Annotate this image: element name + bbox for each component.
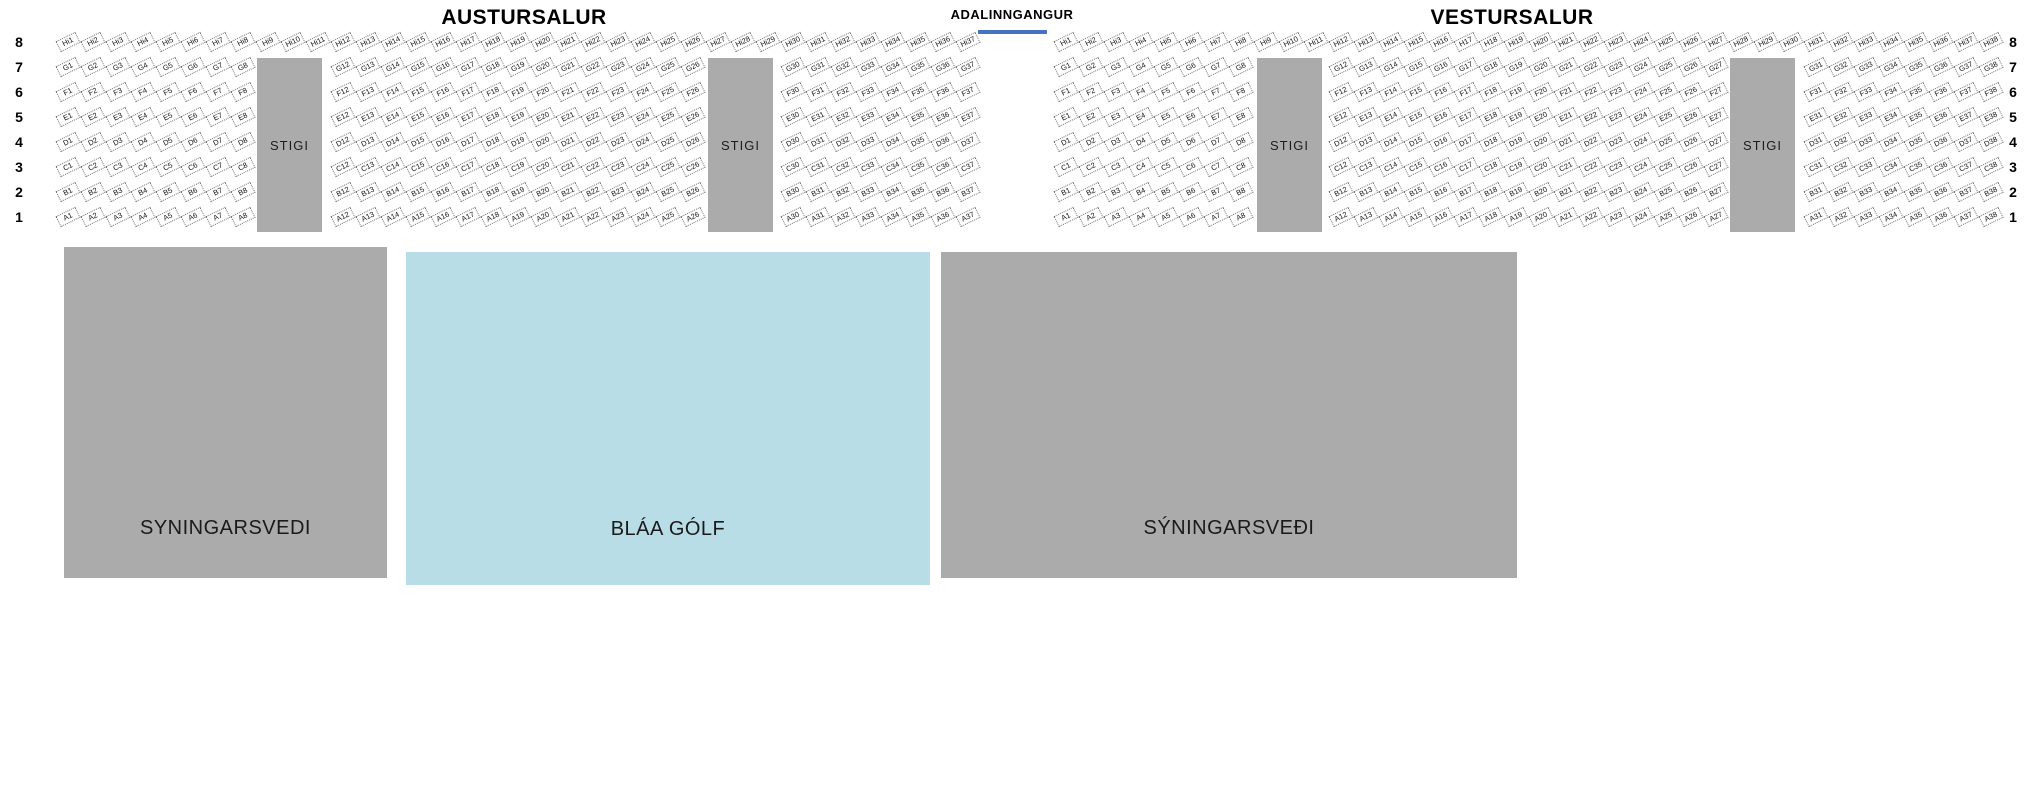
- seat[interactable]: A22: [580, 207, 605, 227]
- seat[interactable]: E5: [1153, 107, 1178, 127]
- seat[interactable]: G26: [680, 57, 705, 77]
- seat[interactable]: F25: [655, 82, 680, 102]
- seat[interactable]: F6: [180, 82, 205, 102]
- seat[interactable]: B33: [855, 182, 880, 202]
- seat[interactable]: D27: [1703, 132, 1728, 152]
- seat[interactable]: F5: [155, 82, 180, 102]
- seat[interactable]: C13: [1353, 157, 1378, 177]
- seat[interactable]: G27: [1703, 57, 1728, 77]
- seat[interactable]: A12: [330, 207, 355, 227]
- seat[interactable]: E21: [1553, 107, 1578, 127]
- seat[interactable]: Hi4: [130, 32, 155, 52]
- seat[interactable]: A5: [155, 207, 180, 227]
- seat[interactable]: Hi31: [1803, 32, 1828, 52]
- seat[interactable]: F3: [105, 82, 130, 102]
- seat[interactable]: E27: [1703, 107, 1728, 127]
- seat[interactable]: C5: [1153, 157, 1178, 177]
- seat[interactable]: A19: [505, 207, 530, 227]
- seat[interactable]: Hi28: [730, 32, 755, 52]
- seat[interactable]: A24: [630, 207, 655, 227]
- seat[interactable]: D13: [355, 132, 380, 152]
- seat[interactable]: D33: [855, 132, 880, 152]
- seat[interactable]: Hi29: [755, 32, 780, 52]
- seat[interactable]: Hi20: [1528, 32, 1553, 52]
- seat[interactable]: B6: [1178, 182, 1203, 202]
- seat[interactable]: D13: [1353, 132, 1378, 152]
- seat[interactable]: D16: [430, 132, 455, 152]
- seat[interactable]: G18: [1478, 57, 1503, 77]
- seat[interactable]: A32: [830, 207, 855, 227]
- seat[interactable]: F31: [1803, 82, 1828, 102]
- seat[interactable]: Hi16: [1428, 32, 1453, 52]
- seat[interactable]: E24: [1628, 107, 1653, 127]
- seat[interactable]: G13: [355, 57, 380, 77]
- seat[interactable]: B24: [1628, 182, 1653, 202]
- seat[interactable]: B2: [80, 182, 105, 202]
- seat[interactable]: A27: [1703, 207, 1728, 227]
- seat[interactable]: B23: [605, 182, 630, 202]
- seat[interactable]: G37: [955, 57, 980, 77]
- seat[interactable]: F18: [480, 82, 505, 102]
- seat[interactable]: B24: [630, 182, 655, 202]
- seat[interactable]: D31: [805, 132, 830, 152]
- seat[interactable]: Hi29: [1753, 32, 1778, 52]
- seat[interactable]: A6: [180, 207, 205, 227]
- seat[interactable]: F7: [1203, 82, 1228, 102]
- seat[interactable]: D37: [955, 132, 980, 152]
- seat[interactable]: Hi9: [1253, 32, 1278, 52]
- seat[interactable]: B17: [1453, 182, 1478, 202]
- seat[interactable]: F37: [1953, 82, 1978, 102]
- seat[interactable]: D35: [1903, 132, 1928, 152]
- seat[interactable]: D24: [630, 132, 655, 152]
- seat[interactable]: F3: [1103, 82, 1128, 102]
- seat[interactable]: F22: [580, 82, 605, 102]
- seat[interactable]: F17: [455, 82, 480, 102]
- seat[interactable]: Hi9: [255, 32, 280, 52]
- seat[interactable]: C13: [355, 157, 380, 177]
- seat[interactable]: A20: [530, 207, 555, 227]
- seat[interactable]: Hi25: [1653, 32, 1678, 52]
- seat[interactable]: G23: [605, 57, 630, 77]
- seat[interactable]: E36: [930, 107, 955, 127]
- seat[interactable]: F34: [1878, 82, 1903, 102]
- seat[interactable]: D2: [80, 132, 105, 152]
- seat[interactable]: E5: [155, 107, 180, 127]
- seat[interactable]: Hi24: [630, 32, 655, 52]
- seat[interactable]: F14: [1378, 82, 1403, 102]
- seat[interactable]: Hi30: [780, 32, 805, 52]
- seat[interactable]: F37: [955, 82, 980, 102]
- seat[interactable]: E12: [1328, 107, 1353, 127]
- seat[interactable]: D5: [1153, 132, 1178, 152]
- seat[interactable]: Hi12: [330, 32, 355, 52]
- seat[interactable]: C22: [1578, 157, 1603, 177]
- seat[interactable]: Hi18: [480, 32, 505, 52]
- seat[interactable]: F27: [1703, 82, 1728, 102]
- floor-area-blaa-golf[interactable]: BLÁA GÓLF: [406, 252, 930, 585]
- seat[interactable]: Hi27: [1703, 32, 1728, 52]
- seat[interactable]: Hi12: [1328, 32, 1353, 52]
- seat[interactable]: E3: [1103, 107, 1128, 127]
- seat[interactable]: G5: [155, 57, 180, 77]
- seat[interactable]: D23: [1603, 132, 1628, 152]
- seat[interactable]: C20: [530, 157, 555, 177]
- floor-area-syningarsvedi-left[interactable]: SYNINGARSVEDI: [64, 247, 387, 578]
- seat[interactable]: D6: [1178, 132, 1203, 152]
- seat[interactable]: F33: [1853, 82, 1878, 102]
- seat[interactable]: F24: [1628, 82, 1653, 102]
- seat[interactable]: A21: [1553, 207, 1578, 227]
- seat[interactable]: C26: [1678, 157, 1703, 177]
- seat[interactable]: Hi32: [1828, 32, 1853, 52]
- seat[interactable]: C19: [505, 157, 530, 177]
- seat[interactable]: Hi5: [1153, 32, 1178, 52]
- seat[interactable]: A24: [1628, 207, 1653, 227]
- seat[interactable]: G3: [1103, 57, 1128, 77]
- seat[interactable]: D12: [330, 132, 355, 152]
- seat[interactable]: E15: [405, 107, 430, 127]
- seat[interactable]: F19: [1503, 82, 1528, 102]
- seat[interactable]: C24: [630, 157, 655, 177]
- seat[interactable]: A36: [1928, 207, 1953, 227]
- seat[interactable]: C2: [80, 157, 105, 177]
- seat[interactable]: D19: [1503, 132, 1528, 152]
- seat[interactable]: F13: [355, 82, 380, 102]
- seat[interactable]: D8: [1228, 132, 1253, 152]
- seat[interactable]: B18: [480, 182, 505, 202]
- seat[interactable]: F4: [130, 82, 155, 102]
- seat[interactable]: C17: [455, 157, 480, 177]
- seat[interactable]: F12: [330, 82, 355, 102]
- seat[interactable]: Hi36: [1928, 32, 1953, 52]
- seat[interactable]: B31: [805, 182, 830, 202]
- seat[interactable]: E13: [355, 107, 380, 127]
- seat[interactable]: D7: [1203, 132, 1228, 152]
- seat[interactable]: A17: [1453, 207, 1478, 227]
- seat[interactable]: Hi33: [855, 32, 880, 52]
- seat[interactable]: E3: [105, 107, 130, 127]
- seat[interactable]: F33: [855, 82, 880, 102]
- seat[interactable]: E33: [855, 107, 880, 127]
- seat[interactable]: E16: [1428, 107, 1453, 127]
- seat[interactable]: A13: [1353, 207, 1378, 227]
- seat[interactable]: A1: [1053, 207, 1078, 227]
- seat[interactable]: G22: [580, 57, 605, 77]
- seat[interactable]: Hi23: [605, 32, 630, 52]
- seat[interactable]: C26: [680, 157, 705, 177]
- seat[interactable]: F30: [780, 82, 805, 102]
- seat[interactable]: E22: [580, 107, 605, 127]
- seat[interactable]: Hi34: [1878, 32, 1903, 52]
- seat[interactable]: G34: [880, 57, 905, 77]
- seat[interactable]: E8: [230, 107, 255, 127]
- seat[interactable]: B21: [1553, 182, 1578, 202]
- seat[interactable]: C15: [1403, 157, 1428, 177]
- seat[interactable]: A7: [1203, 207, 1228, 227]
- seat[interactable]: B3: [105, 182, 130, 202]
- seat[interactable]: F14: [380, 82, 405, 102]
- seat[interactable]: C20: [1528, 157, 1553, 177]
- seat[interactable]: C30: [780, 157, 805, 177]
- seat[interactable]: C4: [1128, 157, 1153, 177]
- seat[interactable]: C3: [1103, 157, 1128, 177]
- seat[interactable]: D23: [605, 132, 630, 152]
- seat[interactable]: B16: [1428, 182, 1453, 202]
- seat[interactable]: G4: [130, 57, 155, 77]
- seat[interactable]: F16: [430, 82, 455, 102]
- seat[interactable]: E15: [1403, 107, 1428, 127]
- seat[interactable]: A35: [1903, 207, 1928, 227]
- seat[interactable]: G36: [1928, 57, 1953, 77]
- seat[interactable]: C32: [1828, 157, 1853, 177]
- seat[interactable]: B37: [1953, 182, 1978, 202]
- seat[interactable]: B30: [780, 182, 805, 202]
- seat[interactable]: F26: [680, 82, 705, 102]
- seat[interactable]: E24: [630, 107, 655, 127]
- seat[interactable]: Hi10: [1278, 32, 1303, 52]
- seat[interactable]: A3: [105, 207, 130, 227]
- seat[interactable]: D22: [580, 132, 605, 152]
- seat[interactable]: Hi22: [580, 32, 605, 52]
- seat[interactable]: G20: [1528, 57, 1553, 77]
- seat[interactable]: B4: [130, 182, 155, 202]
- seat[interactable]: Hi13: [355, 32, 380, 52]
- seat[interactable]: F20: [530, 82, 555, 102]
- seat[interactable]: E2: [1078, 107, 1103, 127]
- seat[interactable]: C31: [805, 157, 830, 177]
- seat[interactable]: A21: [555, 207, 580, 227]
- seat[interactable]: Hi11: [305, 32, 330, 52]
- seat[interactable]: G26: [1678, 57, 1703, 77]
- seat[interactable]: Hi23: [1603, 32, 1628, 52]
- seat[interactable]: E23: [605, 107, 630, 127]
- seat[interactable]: D36: [930, 132, 955, 152]
- seat[interactable]: Hi25: [655, 32, 680, 52]
- seat[interactable]: F5: [1153, 82, 1178, 102]
- seat[interactable]: G1: [1053, 57, 1078, 77]
- seat[interactable]: F32: [1828, 82, 1853, 102]
- seat[interactable]: G37: [1953, 57, 1978, 77]
- seat[interactable]: E35: [1903, 107, 1928, 127]
- seat[interactable]: B5: [155, 182, 180, 202]
- seat[interactable]: D18: [1478, 132, 1503, 152]
- seat[interactable]: A34: [880, 207, 905, 227]
- seat[interactable]: D22: [1578, 132, 1603, 152]
- seat[interactable]: E19: [1503, 107, 1528, 127]
- seat[interactable]: B13: [355, 182, 380, 202]
- seat[interactable]: A23: [605, 207, 630, 227]
- seat[interactable]: D21: [1553, 132, 1578, 152]
- seat[interactable]: Hi26: [1678, 32, 1703, 52]
- seat[interactable]: Hi13: [1353, 32, 1378, 52]
- seat[interactable]: E31: [805, 107, 830, 127]
- seat[interactable]: D3: [105, 132, 130, 152]
- seat[interactable]: C16: [430, 157, 455, 177]
- seat[interactable]: Hi32: [830, 32, 855, 52]
- seat[interactable]: F17: [1453, 82, 1478, 102]
- seat[interactable]: B12: [1328, 182, 1353, 202]
- seat[interactable]: E20: [530, 107, 555, 127]
- seat[interactable]: B20: [530, 182, 555, 202]
- seat[interactable]: C37: [1953, 157, 1978, 177]
- seat[interactable]: A15: [405, 207, 430, 227]
- seat[interactable]: C14: [1378, 157, 1403, 177]
- seat[interactable]: E17: [1453, 107, 1478, 127]
- seat[interactable]: Hi20: [530, 32, 555, 52]
- seat[interactable]: B14: [1378, 182, 1403, 202]
- seat[interactable]: Hi14: [1378, 32, 1403, 52]
- seat[interactable]: F16: [1428, 82, 1453, 102]
- seat[interactable]: Hi15: [405, 32, 430, 52]
- seat[interactable]: B32: [1828, 182, 1853, 202]
- seat[interactable]: F2: [1078, 82, 1103, 102]
- seat[interactable]: E2: [80, 107, 105, 127]
- seat[interactable]: E6: [180, 107, 205, 127]
- seat[interactable]: A26: [1678, 207, 1703, 227]
- seat[interactable]: G2: [80, 57, 105, 77]
- seat[interactable]: B26: [1678, 182, 1703, 202]
- seat[interactable]: A4: [130, 207, 155, 227]
- seat[interactable]: E8: [1228, 107, 1253, 127]
- seat[interactable]: D35: [905, 132, 930, 152]
- seat[interactable]: D5: [155, 132, 180, 152]
- seat[interactable]: C18: [1478, 157, 1503, 177]
- seat[interactable]: A8: [1228, 207, 1253, 227]
- seat[interactable]: B1: [1053, 182, 1078, 202]
- seat[interactable]: E31: [1803, 107, 1828, 127]
- seat[interactable]: D2: [1078, 132, 1103, 152]
- seat[interactable]: Hi31: [805, 32, 830, 52]
- seat[interactable]: G5: [1153, 57, 1178, 77]
- seat[interactable]: Hi10: [280, 32, 305, 52]
- seat[interactable]: D34: [880, 132, 905, 152]
- seat[interactable]: Hi15: [1403, 32, 1428, 52]
- seat[interactable]: C2: [1078, 157, 1103, 177]
- seat[interactable]: D33: [1853, 132, 1878, 152]
- seat[interactable]: C15: [405, 157, 430, 177]
- seat[interactable]: D16: [1428, 132, 1453, 152]
- seat[interactable]: D4: [130, 132, 155, 152]
- seat[interactable]: B13: [1353, 182, 1378, 202]
- seat[interactable]: D4: [1128, 132, 1153, 152]
- seat[interactable]: F19: [505, 82, 530, 102]
- seat[interactable]: B16: [430, 182, 455, 202]
- seat[interactable]: D20: [530, 132, 555, 152]
- seat[interactable]: A2: [1078, 207, 1103, 227]
- seat[interactable]: E37: [1953, 107, 1978, 127]
- seat[interactable]: F25: [1653, 82, 1678, 102]
- seat[interactable]: E16: [430, 107, 455, 127]
- seat[interactable]: E7: [205, 107, 230, 127]
- seat[interactable]: B26: [680, 182, 705, 202]
- seat[interactable]: G33: [1853, 57, 1878, 77]
- seat[interactable]: E18: [480, 107, 505, 127]
- seat[interactable]: C36: [930, 157, 955, 177]
- seat[interactable]: B5: [1153, 182, 1178, 202]
- seat[interactable]: B17: [455, 182, 480, 202]
- seat[interactable]: A14: [380, 207, 405, 227]
- seat[interactable]: E32: [1828, 107, 1853, 127]
- seat[interactable]: A2: [80, 207, 105, 227]
- seat[interactable]: F1: [1053, 82, 1078, 102]
- seat[interactable]: C1: [1053, 157, 1078, 177]
- seat[interactable]: G17: [1453, 57, 1478, 77]
- seat[interactable]: G22: [1578, 57, 1603, 77]
- seat[interactable]: D1: [1053, 132, 1078, 152]
- seat[interactable]: D1: [55, 132, 80, 152]
- seat[interactable]: B35: [1903, 182, 1928, 202]
- seat[interactable]: B18: [1478, 182, 1503, 202]
- seat[interactable]: B22: [580, 182, 605, 202]
- seat[interactable]: A23: [1603, 207, 1628, 227]
- seat[interactable]: D32: [830, 132, 855, 152]
- seat[interactable]: Hi37: [955, 32, 980, 52]
- seat[interactable]: C27: [1703, 157, 1728, 177]
- seat[interactable]: F15: [405, 82, 430, 102]
- seat[interactable]: Hi21: [1553, 32, 1578, 52]
- seat[interactable]: G21: [1553, 57, 1578, 77]
- seat[interactable]: H17: [1453, 32, 1478, 52]
- seat[interactable]: D15: [405, 132, 430, 152]
- seat[interactable]: A15: [1403, 207, 1428, 227]
- seat[interactable]: Hi33: [1853, 32, 1878, 52]
- seat[interactable]: C5: [155, 157, 180, 177]
- seat[interactable]: B34: [880, 182, 905, 202]
- seat[interactable]: Hi27: [705, 32, 730, 52]
- seat[interactable]: D20: [1528, 132, 1553, 152]
- seat[interactable]: Hi34: [880, 32, 905, 52]
- seat[interactable]: B31: [1803, 182, 1828, 202]
- seat[interactable]: C32: [830, 157, 855, 177]
- seat[interactable]: D31: [1803, 132, 1828, 152]
- seat[interactable]: A31: [805, 207, 830, 227]
- seat[interactable]: A20: [1528, 207, 1553, 227]
- seat[interactable]: A34: [1878, 207, 1903, 227]
- seat[interactable]: A25: [1653, 207, 1678, 227]
- seat[interactable]: Hi3: [105, 32, 130, 52]
- seat[interactable]: G12: [330, 57, 355, 77]
- seat[interactable]: C7: [1203, 157, 1228, 177]
- seat[interactable]: F23: [605, 82, 630, 102]
- seat[interactable]: C25: [1653, 157, 1678, 177]
- seat[interactable]: C33: [1853, 157, 1878, 177]
- seat[interactable]: D18: [480, 132, 505, 152]
- seat[interactable]: E26: [680, 107, 705, 127]
- seat[interactable]: G19: [1503, 57, 1528, 77]
- seat[interactable]: C22: [580, 157, 605, 177]
- seat[interactable]: G25: [655, 57, 680, 77]
- seat[interactable]: G16: [430, 57, 455, 77]
- seat[interactable]: A33: [855, 207, 880, 227]
- seat[interactable]: C37: [955, 157, 980, 177]
- seat[interactable]: B20: [1528, 182, 1553, 202]
- seat[interactable]: G13: [1353, 57, 1378, 77]
- seat[interactable]: Hi21: [555, 32, 580, 52]
- seat[interactable]: F12: [1328, 82, 1353, 102]
- seat[interactable]: G16: [1428, 57, 1453, 77]
- seat[interactable]: C4: [130, 157, 155, 177]
- seat[interactable]: Hi1: [1053, 32, 1078, 52]
- seat[interactable]: E13: [1353, 107, 1378, 127]
- seat[interactable]: D30: [780, 132, 805, 152]
- seat[interactable]: E22: [1578, 107, 1603, 127]
- seat[interactable]: G15: [1403, 57, 1428, 77]
- seat[interactable]: C33: [855, 157, 880, 177]
- seat[interactable]: B7: [1203, 182, 1228, 202]
- seat[interactable]: E26: [1678, 107, 1703, 127]
- seat[interactable]: D34: [1878, 132, 1903, 152]
